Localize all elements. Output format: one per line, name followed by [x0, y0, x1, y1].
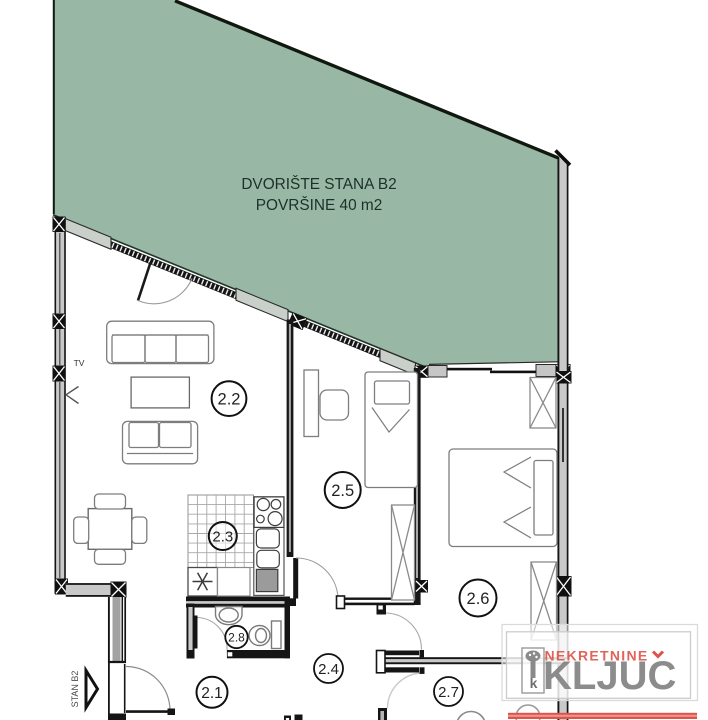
svg-text:2.4: 2.4 [318, 661, 339, 678]
svg-text:TV: TV [74, 358, 85, 368]
svg-text:STAN B2: STAN B2 [70, 671, 80, 708]
svg-text:DVORIŠTE STANA B2: DVORIŠTE STANA B2 [241, 176, 396, 193]
svg-text:2.8: 2.8 [228, 631, 245, 645]
svg-text:2.6: 2.6 [467, 590, 490, 608]
svg-text:2.3: 2.3 [212, 529, 233, 546]
svg-text:POVRŠINE 40 m2: POVRŠINE 40 m2 [256, 197, 383, 214]
svg-text:2.7: 2.7 [438, 684, 459, 701]
svg-text:2.2: 2.2 [218, 391, 241, 409]
svg-text:KLJUC: KLJUC [543, 654, 676, 698]
svg-text:k: k [530, 675, 538, 691]
svg-text:2.5: 2.5 [331, 482, 354, 500]
svg-text:2.1: 2.1 [201, 685, 223, 702]
